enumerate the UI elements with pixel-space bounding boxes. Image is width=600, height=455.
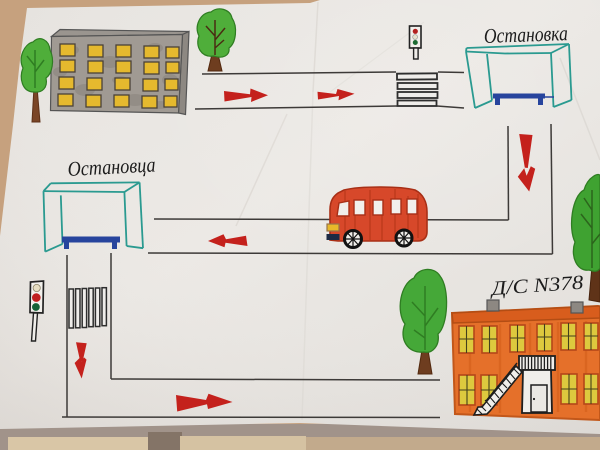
svg-text:Остановца: Остановца: [67, 152, 156, 181]
